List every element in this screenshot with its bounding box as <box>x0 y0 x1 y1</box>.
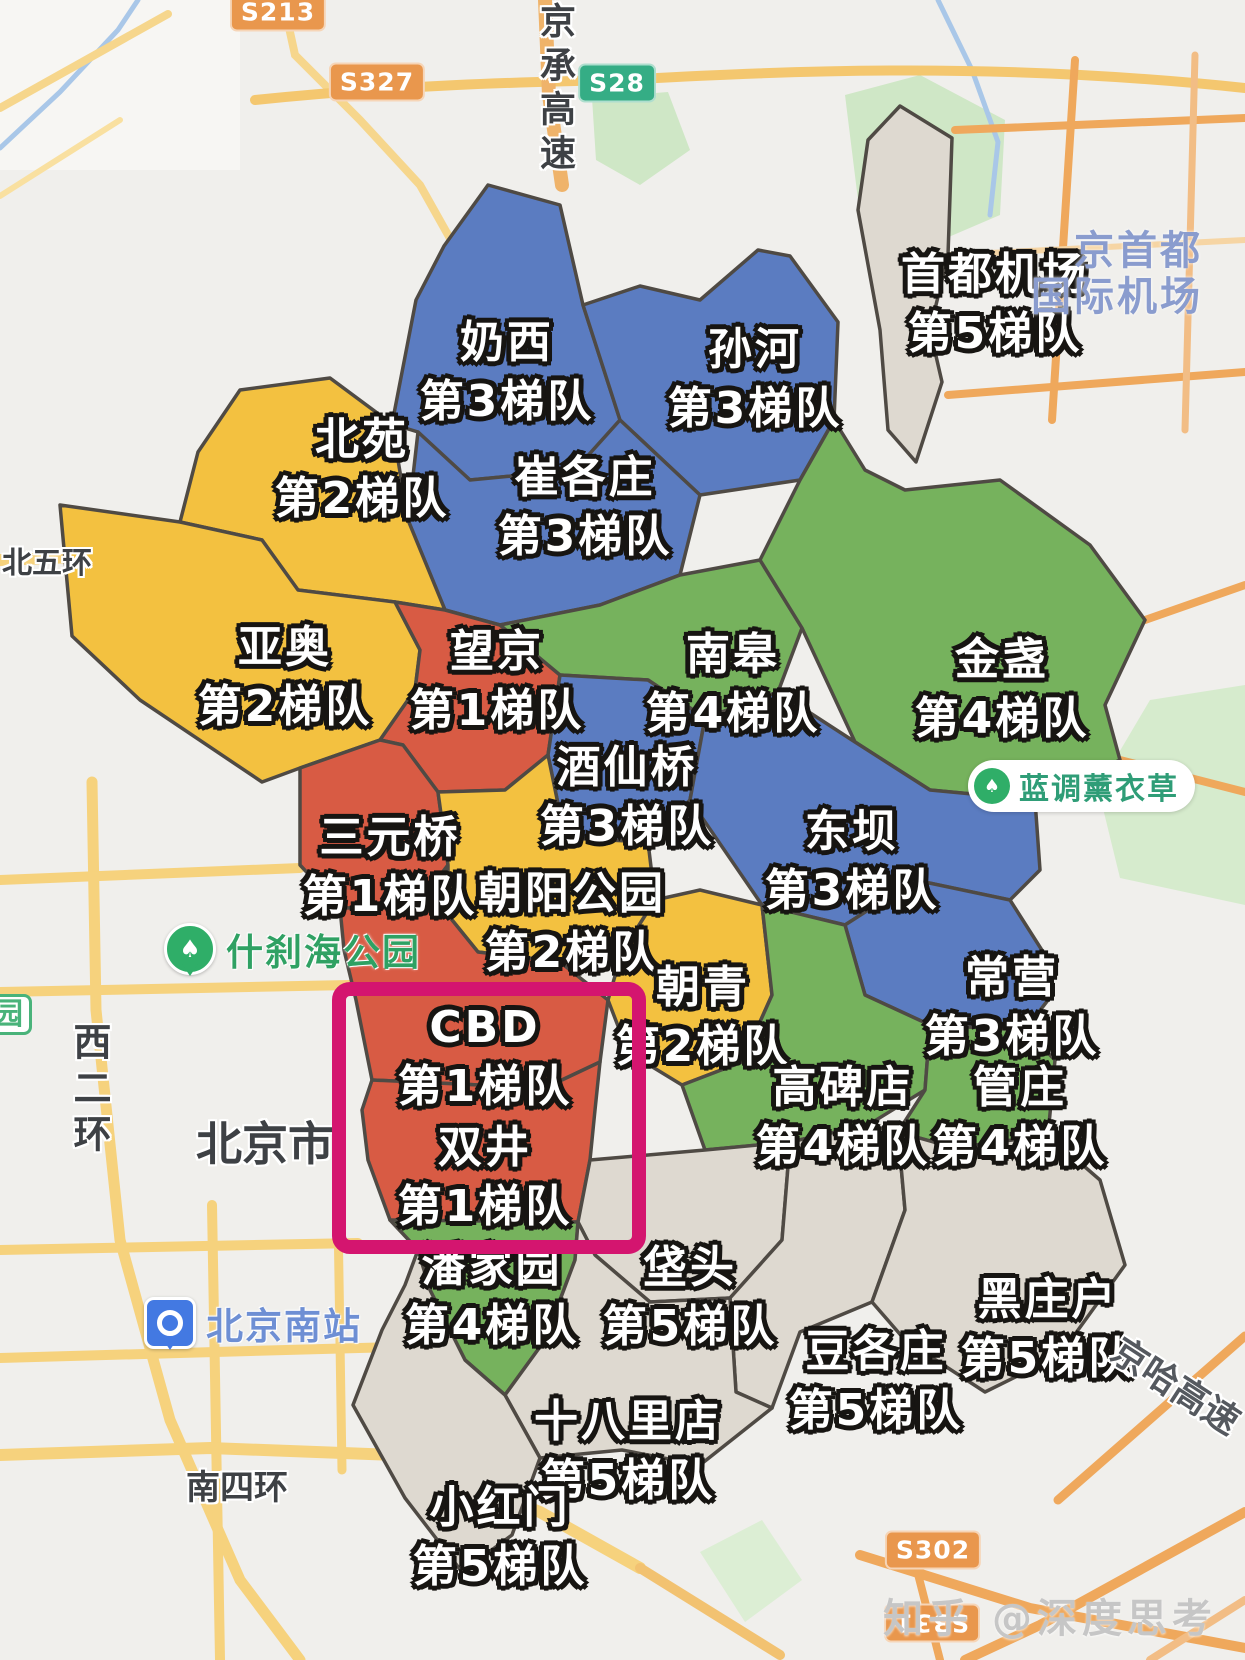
zhihu-watermark: 知乎 @深度思考 <box>883 1586 1217 1644</box>
beijing-chaoyang-tier-map: 首都机场第5梯队奶西第3梯队孙河第3梯队北苑第2梯队崔各庄第3梯队亚奥第2梯队望… <box>0 0 1245 1660</box>
base-map-svg <box>0 0 1245 1660</box>
cbd-shuangjing-highlight-box <box>332 982 646 1254</box>
